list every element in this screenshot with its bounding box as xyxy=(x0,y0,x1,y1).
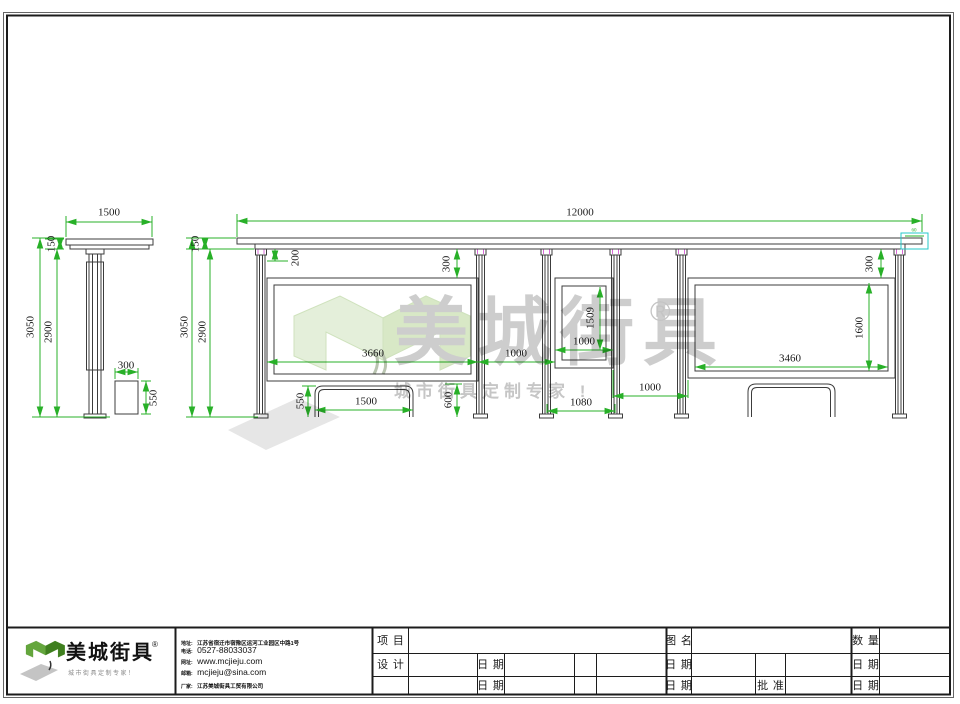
dim-front-right-gap: 1000 xyxy=(639,383,661,394)
dim-front-bench-back-height: 600 xyxy=(444,392,455,409)
title-block-drawing-name-label: 图 名 xyxy=(665,632,693,648)
drawing-canvas xyxy=(0,0,960,704)
dim-front-right-panel-width: 3460 xyxy=(779,354,801,365)
company-factory-line: 厂家: 江苏美城街具工贸有限公司 xyxy=(181,676,263,692)
dim-side-bin-width: 300 xyxy=(118,361,135,372)
title-block-date-label: 日 期 xyxy=(477,656,505,672)
dim-front-panel-top-gap-left: 300 xyxy=(442,256,453,273)
dim-side-bin-height: 550 xyxy=(149,390,160,407)
dim-front-roof-height: 150 xyxy=(191,236,202,253)
roof-slab xyxy=(237,238,922,244)
side-view-geometry xyxy=(66,239,153,418)
drawing-sheet: 美城街具 ® 城市街具定制专家 ! 1500 150 3050 2900 300… xyxy=(0,0,960,704)
roof-fascia xyxy=(255,244,905,249)
title-block-date-label: 日 期 xyxy=(477,677,505,693)
dim-front-roof-edge: 60 xyxy=(912,229,917,234)
factory-label: 厂家: xyxy=(181,684,193,690)
dim-front-left-panel-width: 3660 xyxy=(362,349,384,360)
right-bench xyxy=(748,384,835,417)
dim-side-total-height: 3050 xyxy=(26,316,37,338)
column-joint-marks xyxy=(258,250,903,255)
left-ad-panel xyxy=(267,278,478,381)
columns xyxy=(254,249,907,418)
front-view-geometry xyxy=(237,238,922,418)
dim-front-roof-gap: 200 xyxy=(291,250,302,267)
title-block-date-label: 日 期 xyxy=(665,677,693,693)
dim-front-bench-height: 550 xyxy=(296,393,307,410)
dim-front-panel-top-gap-right: 300 xyxy=(865,256,876,273)
dim-side-roof-width: 1500 xyxy=(98,208,120,219)
title-block-date-label: 日 期 xyxy=(665,656,693,672)
dim-front-total-width: 12000 xyxy=(566,208,594,219)
title-block-project-label: 项 目 xyxy=(377,632,405,648)
factory-value: 江苏美城街具工贸有限公司 xyxy=(197,684,263,690)
company-logo-icon xyxy=(20,641,65,681)
company-brand-text: 美城街具 xyxy=(66,643,154,663)
title-block-date-label: 日 期 xyxy=(852,656,880,672)
dim-front-kiosk-columns-span: 1080 xyxy=(570,398,592,409)
title-block-design-label: 设 计 xyxy=(377,656,405,672)
dim-side-column-height: 2900 xyxy=(44,321,55,343)
title-block-approve-label: 批 准 xyxy=(757,677,785,693)
trash-bin xyxy=(115,381,138,414)
title-block-quantity-label: 数 量 xyxy=(852,632,880,648)
dim-side-roof-height: 150 xyxy=(47,236,58,253)
dim-front-column-height: 2900 xyxy=(198,321,209,343)
title-block-date-label: 日 期 xyxy=(852,677,880,693)
company-registered-mark: ® xyxy=(152,641,158,649)
company-tagline: 城市街具定制专家！ xyxy=(68,668,136,677)
dim-front-bench-width: 1500 xyxy=(355,397,377,408)
dim-front-kiosk-height: 1509 xyxy=(586,307,597,329)
dim-front-total-height: 3050 xyxy=(180,316,191,338)
dim-front-right-panel-height: 1600 xyxy=(855,317,866,339)
dim-front-kiosk-width: 1000 xyxy=(573,337,595,348)
dim-front-left-gap: 1000 xyxy=(505,349,527,360)
